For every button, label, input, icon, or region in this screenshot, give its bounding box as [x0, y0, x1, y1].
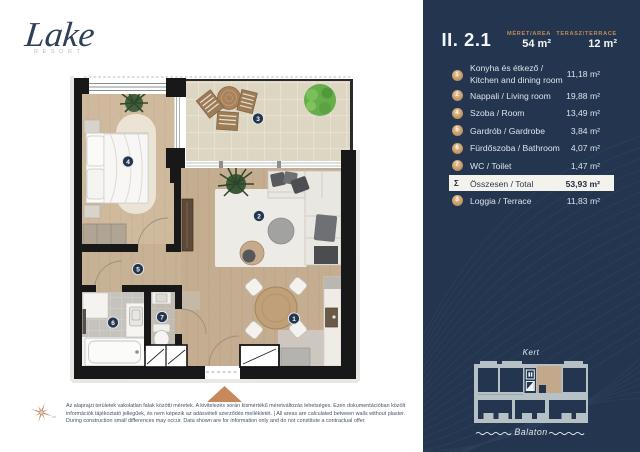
- svg-text:6: 6: [111, 320, 115, 327]
- svg-text:1: 1: [292, 316, 296, 323]
- svg-text:3: 3: [256, 116, 260, 123]
- svg-text:7: 7: [160, 315, 164, 322]
- svg-text:4: 4: [126, 159, 130, 166]
- svg-text:2: 2: [257, 214, 261, 221]
- svg-text:5: 5: [136, 267, 140, 274]
